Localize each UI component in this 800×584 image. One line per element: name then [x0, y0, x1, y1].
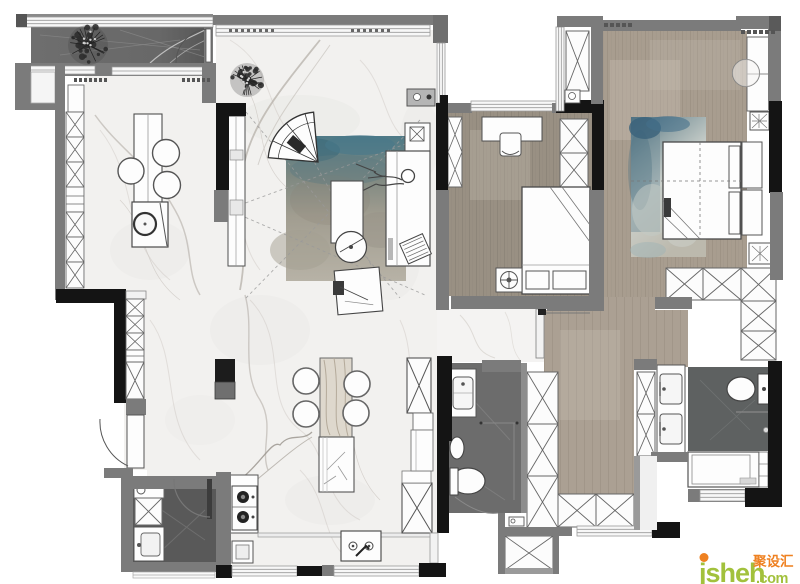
svg-text:.com: .com	[756, 571, 788, 584]
svg-text:聚设汇: 聚设汇	[752, 554, 794, 569]
